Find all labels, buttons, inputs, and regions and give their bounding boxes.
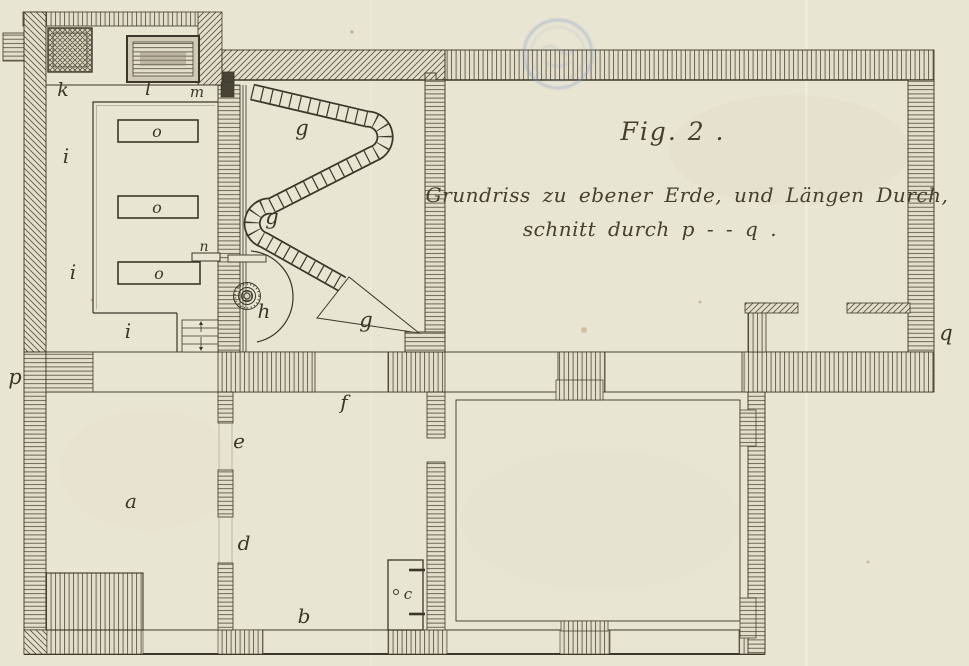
label-g-2: g xyxy=(265,205,278,229)
bottom-wall-seg2 xyxy=(218,630,263,654)
scanned-plan-page: k l m i i i o o o n g g g h a b c d e f … xyxy=(0,0,969,666)
left-wall-upper xyxy=(24,12,46,352)
label-i-3: i xyxy=(125,319,131,343)
label-o-3: o xyxy=(154,264,164,283)
ab-wall-pier-3 xyxy=(218,563,233,630)
stairhall-wall-foot xyxy=(405,332,445,352)
right-wall xyxy=(908,80,934,392)
niche-top-right xyxy=(847,303,910,313)
label-k: k xyxy=(57,79,69,101)
spine-pier-2 xyxy=(218,352,315,392)
left-wall-lower xyxy=(24,352,46,654)
annex-k-block xyxy=(48,28,92,72)
chimney-cap-block xyxy=(221,82,234,97)
spine-block-right xyxy=(742,352,933,392)
label-d: d xyxy=(238,531,251,555)
label-i-2: i xyxy=(70,260,76,284)
b-wall-pier-2 xyxy=(427,462,445,560)
label-g-3: g xyxy=(359,308,372,332)
annex-top-wall xyxy=(23,12,200,26)
top-wall-left xyxy=(222,50,445,80)
label-o-2: o xyxy=(152,198,162,217)
label-e: e xyxy=(233,429,245,453)
niche-top-left xyxy=(745,303,798,313)
caption-line-1: Grundriss zu ebener Erde, und Längen Dur… xyxy=(426,183,949,207)
fig-number: Fig. 2 . xyxy=(619,117,725,146)
label-g-1: g xyxy=(295,116,308,140)
label-h: h xyxy=(258,299,271,323)
small-stair xyxy=(182,320,218,352)
ab-wall-pier-1 xyxy=(218,392,233,423)
label-b: b xyxy=(298,604,311,628)
label-o-1: o xyxy=(152,122,162,141)
top-wall-right xyxy=(445,50,934,80)
caption-line-2: schnitt durch p - - q . xyxy=(523,217,777,241)
label-l: l xyxy=(145,78,151,100)
b-wall-pier-3 xyxy=(427,560,445,630)
ab-wall-pier-2 xyxy=(218,470,233,517)
floor-plan-engraving: k l m i i i o o o n g g g h a b c d e f … xyxy=(0,0,969,666)
spine-pier-3 xyxy=(388,352,445,392)
annex-right-wall xyxy=(198,12,222,85)
label-c: c xyxy=(404,585,413,603)
bottom-wall-seg1 xyxy=(47,630,143,654)
label-a: a xyxy=(125,489,137,513)
oven-block-room-a xyxy=(46,573,143,630)
label-n: n xyxy=(199,239,208,255)
spine-pier-1 xyxy=(46,352,93,392)
annex-outer-block xyxy=(3,33,24,61)
label-q: q xyxy=(939,321,952,345)
b-wall-pier-1 xyxy=(427,392,445,438)
label-i-1: i xyxy=(63,144,69,168)
label-p: p xyxy=(8,365,21,389)
bottom-wall-seg4 xyxy=(560,630,610,654)
bottom-wall-corner xyxy=(24,630,47,654)
axle-bar xyxy=(228,255,266,262)
label-m: m xyxy=(190,83,204,101)
bottom-wall-seg3 xyxy=(388,630,447,654)
